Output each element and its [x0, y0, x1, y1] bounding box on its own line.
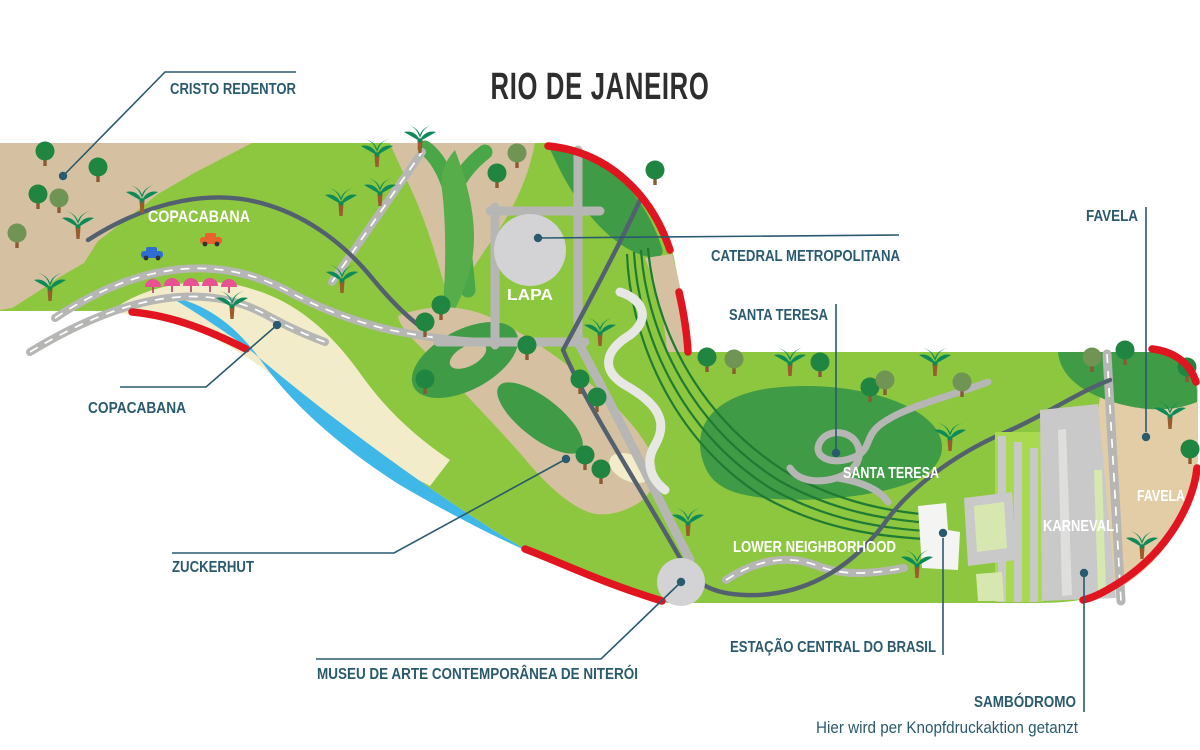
rio-map-infographic: COPACABANA LAPA SANTA TERESA FAVELA LOWE…: [0, 0, 1200, 750]
favela-dot[interactable]: [1142, 433, 1150, 441]
sambodromo-dot[interactable]: [1080, 569, 1088, 577]
callout-label-sambodromo[interactable]: SAMBÓDROMO: [974, 693, 1076, 711]
cristo-redentor-dot[interactable]: [59, 172, 67, 180]
museu-dot[interactable]: [677, 578, 685, 586]
callout-label-copacabana: COPACABANA: [88, 400, 186, 417]
sambodromo-note: Hier wird per Knopfdruckaktion getanzt: [816, 718, 1078, 737]
callout-label-museu: MUSEU DE ARTE CONTEMPORÂNEA DE NITERÓI: [317, 665, 638, 683]
tree-icon: [646, 161, 665, 186]
zuckerhut-dot[interactable]: [562, 455, 570, 463]
callout-label-zuckerhut: ZUCKERHUT: [172, 559, 254, 576]
area-label-favela: FAVELA: [1137, 488, 1185, 505]
copacabana-dot[interactable]: [273, 321, 281, 329]
catedral-dot[interactable]: [534, 234, 542, 242]
callout-label-catedral: CATEDRAL METROPOLITANA: [711, 248, 900, 265]
callout-label-estacao: ESTAÇÃO CENTRAL DO BRASIL: [730, 638, 936, 656]
estacao-dot[interactable]: [939, 529, 947, 537]
santa-teresa-dot[interactable]: [832, 449, 840, 457]
page-title: RIO DE JANEIRO: [491, 66, 710, 108]
area-label-copacabana: COPACABANA: [148, 207, 250, 226]
callout-label-favela: FAVELA: [1086, 208, 1138, 225]
callout-label-santa-teresa: SANTA TERESA: [729, 307, 828, 324]
lapa-plaza-circle-icon: [494, 214, 566, 286]
area-label-lower-neighborhood: LOWER NEIGHBORHOOD: [733, 539, 896, 556]
area-label-lapa: LAPA: [507, 287, 553, 304]
area-label-santa-teresa: SANTA TERESA: [843, 465, 939, 482]
area-label-karneval: KARNEVAL: [1043, 518, 1114, 535]
callout-label-cristo-redentor: CRISTO REDENTOR: [170, 81, 296, 98]
